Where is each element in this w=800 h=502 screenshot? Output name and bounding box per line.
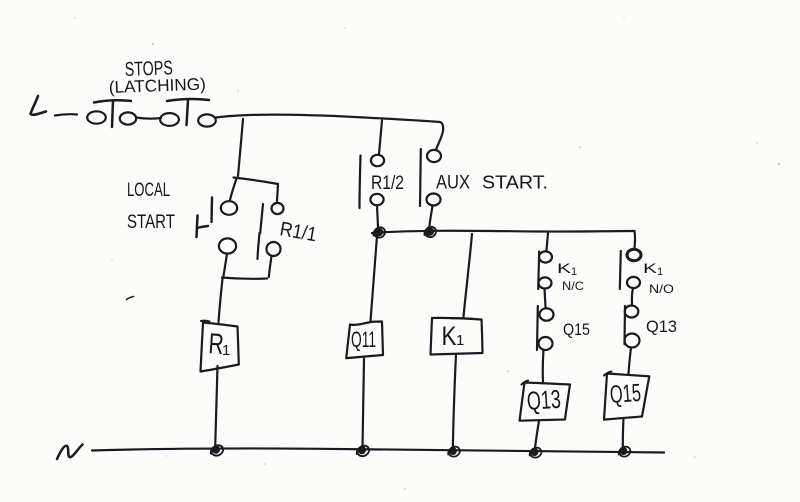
svg-text:Q13: Q13	[526, 384, 562, 416]
svg-text:START.: START.	[482, 173, 548, 193]
svg-text:1: 1	[456, 332, 464, 349]
svg-text:Q13: Q13	[646, 317, 677, 336]
svg-text:N/C: N/C	[562, 279, 584, 293]
svg-text:R1/2: R1/2	[371, 173, 404, 194]
svg-text:N/O: N/O	[649, 282, 674, 296]
svg-text:Q15: Q15	[563, 320, 590, 339]
svg-text:K: K	[442, 321, 457, 351]
svg-text:Q15: Q15	[609, 379, 642, 409]
svg-text:1: 1	[657, 266, 663, 278]
svg-text:(LATCHING): (LATCHING)	[108, 75, 206, 97]
svg-text:START: START	[127, 212, 175, 233]
svg-text:K: K	[557, 260, 572, 276]
svg-text:1: 1	[222, 342, 230, 359]
svg-text:AUX: AUX	[436, 173, 470, 194]
svg-text:LOCAL: LOCAL	[127, 180, 170, 201]
svg-text:1: 1	[571, 266, 577, 278]
svg-text:K: K	[643, 260, 658, 276]
svg-text:Q11: Q11	[351, 327, 376, 352]
